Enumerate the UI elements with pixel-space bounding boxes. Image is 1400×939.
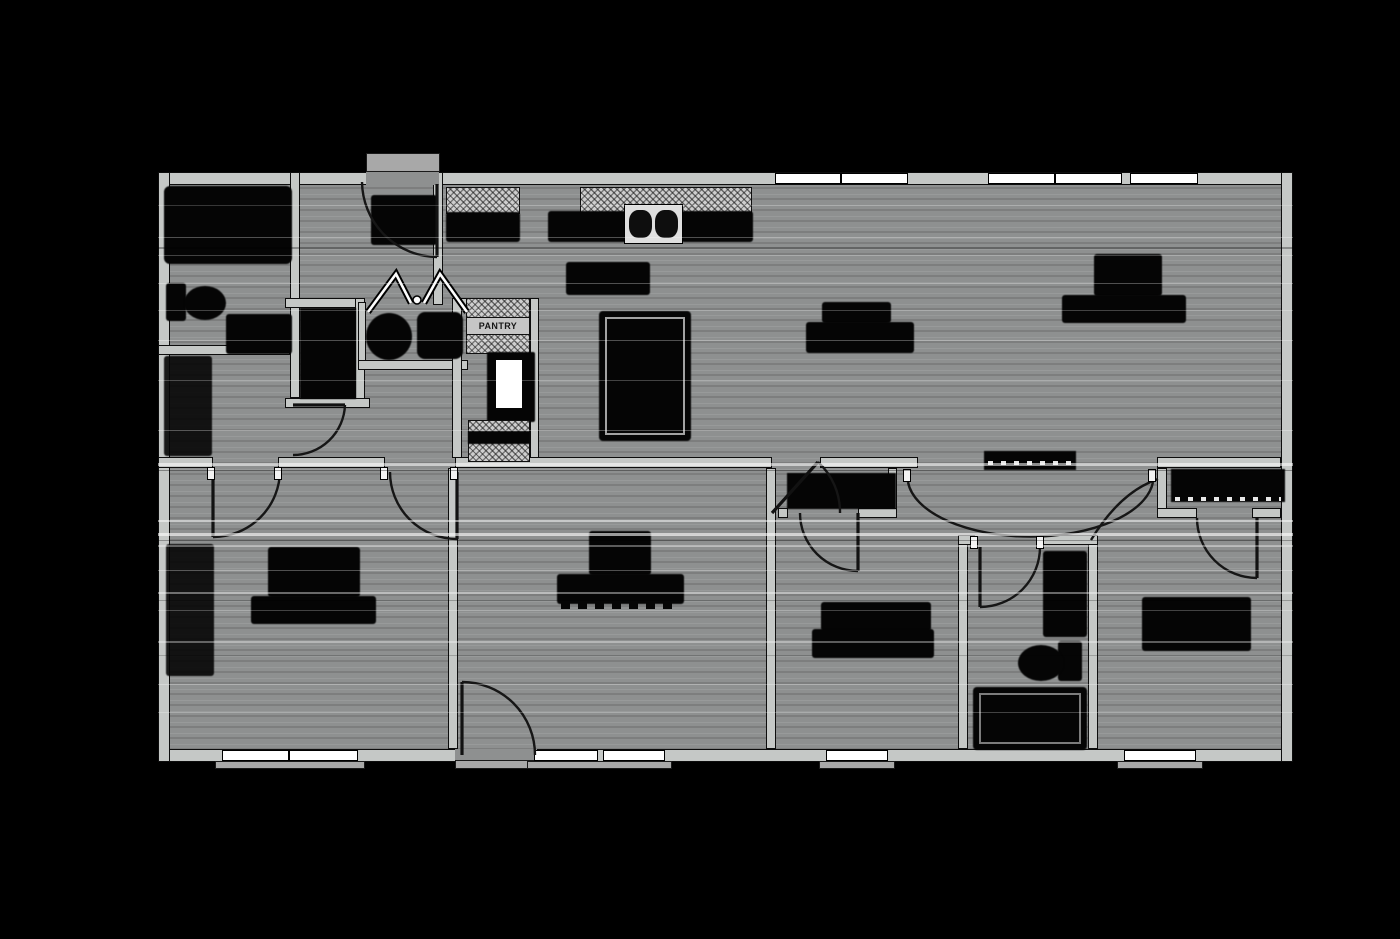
living-label-blob (1094, 254, 1162, 296)
core-closet-fill (300, 308, 356, 399)
exterior-wall-right (1281, 172, 1293, 762)
bedroom3-label-blob (1142, 597, 1251, 651)
interior-wall (958, 540, 968, 749)
pantry-cabinet-band (468, 431, 530, 444)
door-jamb (1148, 469, 1156, 482)
interior-wall (820, 457, 918, 468)
base-cabinet (548, 211, 628, 242)
window (1130, 173, 1198, 184)
refrigerator-inner (496, 360, 522, 408)
window (775, 173, 841, 184)
hall-bath-vanity (1043, 551, 1087, 637)
master-bedroom-label-blob (251, 596, 376, 624)
closet-wall (1157, 508, 1197, 518)
hall-bath-toilet-bowl (1018, 645, 1064, 681)
master-toilet-bowl (184, 286, 226, 320)
window-sill (819, 761, 895, 769)
pantry-shelves (466, 334, 530, 354)
closet-wall (778, 508, 788, 518)
master-bedroom-label-blob (268, 547, 360, 597)
base-cabinet (446, 212, 520, 242)
kitchen-sink (624, 204, 683, 244)
family-room-label-dashes (561, 603, 674, 609)
dining-label-blob (806, 322, 914, 353)
door-jamb (970, 536, 978, 549)
door-jamb (1036, 536, 1044, 549)
interior-wall (1157, 457, 1281, 468)
window-sill (1117, 761, 1203, 769)
bedroom-wall-shade (166, 544, 214, 676)
master-toilet-tank (166, 283, 186, 321)
kitchen-island-trim (605, 317, 685, 435)
core-wall (285, 398, 370, 408)
window (1124, 750, 1196, 761)
core-wall (285, 298, 365, 308)
door-jamb (903, 469, 911, 482)
dryer (417, 312, 463, 359)
window (841, 173, 908, 184)
exterior-wall-top (158, 172, 1293, 185)
door-jamb (380, 467, 388, 480)
back-door-opening (366, 172, 439, 185)
bedroom2-label-blob (812, 629, 934, 658)
closet-wall (1252, 508, 1281, 518)
master-closet-shade (164, 356, 212, 456)
door-jamb (450, 467, 458, 480)
bedroom3-closet-dashes (1175, 497, 1281, 501)
door-jamb (274, 467, 282, 480)
window (534, 750, 598, 761)
washer (366, 313, 412, 360)
sink-bowl (655, 210, 678, 238)
window (289, 750, 358, 761)
bedroom2-closet-shelf (787, 473, 896, 509)
master-vanity (226, 314, 292, 354)
living-label-blob (1062, 295, 1186, 323)
interior-wall (448, 468, 458, 749)
family-room-label-blob (557, 574, 684, 604)
dining-label-blob (822, 302, 891, 323)
pantry-label: PANTRY (466, 318, 530, 334)
hall-header-dashes (988, 461, 1072, 465)
window-sill (527, 761, 672, 769)
back-stoop (366, 153, 440, 172)
bedroom2-label-blob (821, 602, 931, 631)
bath-wall (1040, 535, 1098, 545)
floor-plan-canvas: PANTRY (0, 0, 1400, 939)
interior-wall (766, 468, 776, 749)
pantry-shelves (466, 298, 530, 318)
window (826, 750, 888, 761)
window (988, 173, 1055, 184)
family-room-label-blob (589, 531, 651, 575)
window (603, 750, 665, 761)
core-wall (358, 302, 366, 364)
interior-wall (1088, 540, 1098, 749)
garden-tub (164, 186, 292, 264)
window-sill (215, 761, 365, 769)
kitchen-label-blob (566, 262, 650, 295)
hall-bath-tub-trim (979, 693, 1081, 744)
sink-bowl (629, 210, 652, 238)
closet-wall (858, 508, 897, 518)
door-jamb (207, 467, 215, 480)
front-threshold (455, 760, 537, 769)
window (222, 750, 289, 761)
back-door-shade (371, 195, 437, 245)
kitchen-counter-hatch (446, 187, 520, 214)
interior-wall (158, 457, 213, 468)
base-cabinet (681, 211, 753, 242)
interior-wall (278, 457, 385, 468)
window (1055, 173, 1122, 184)
